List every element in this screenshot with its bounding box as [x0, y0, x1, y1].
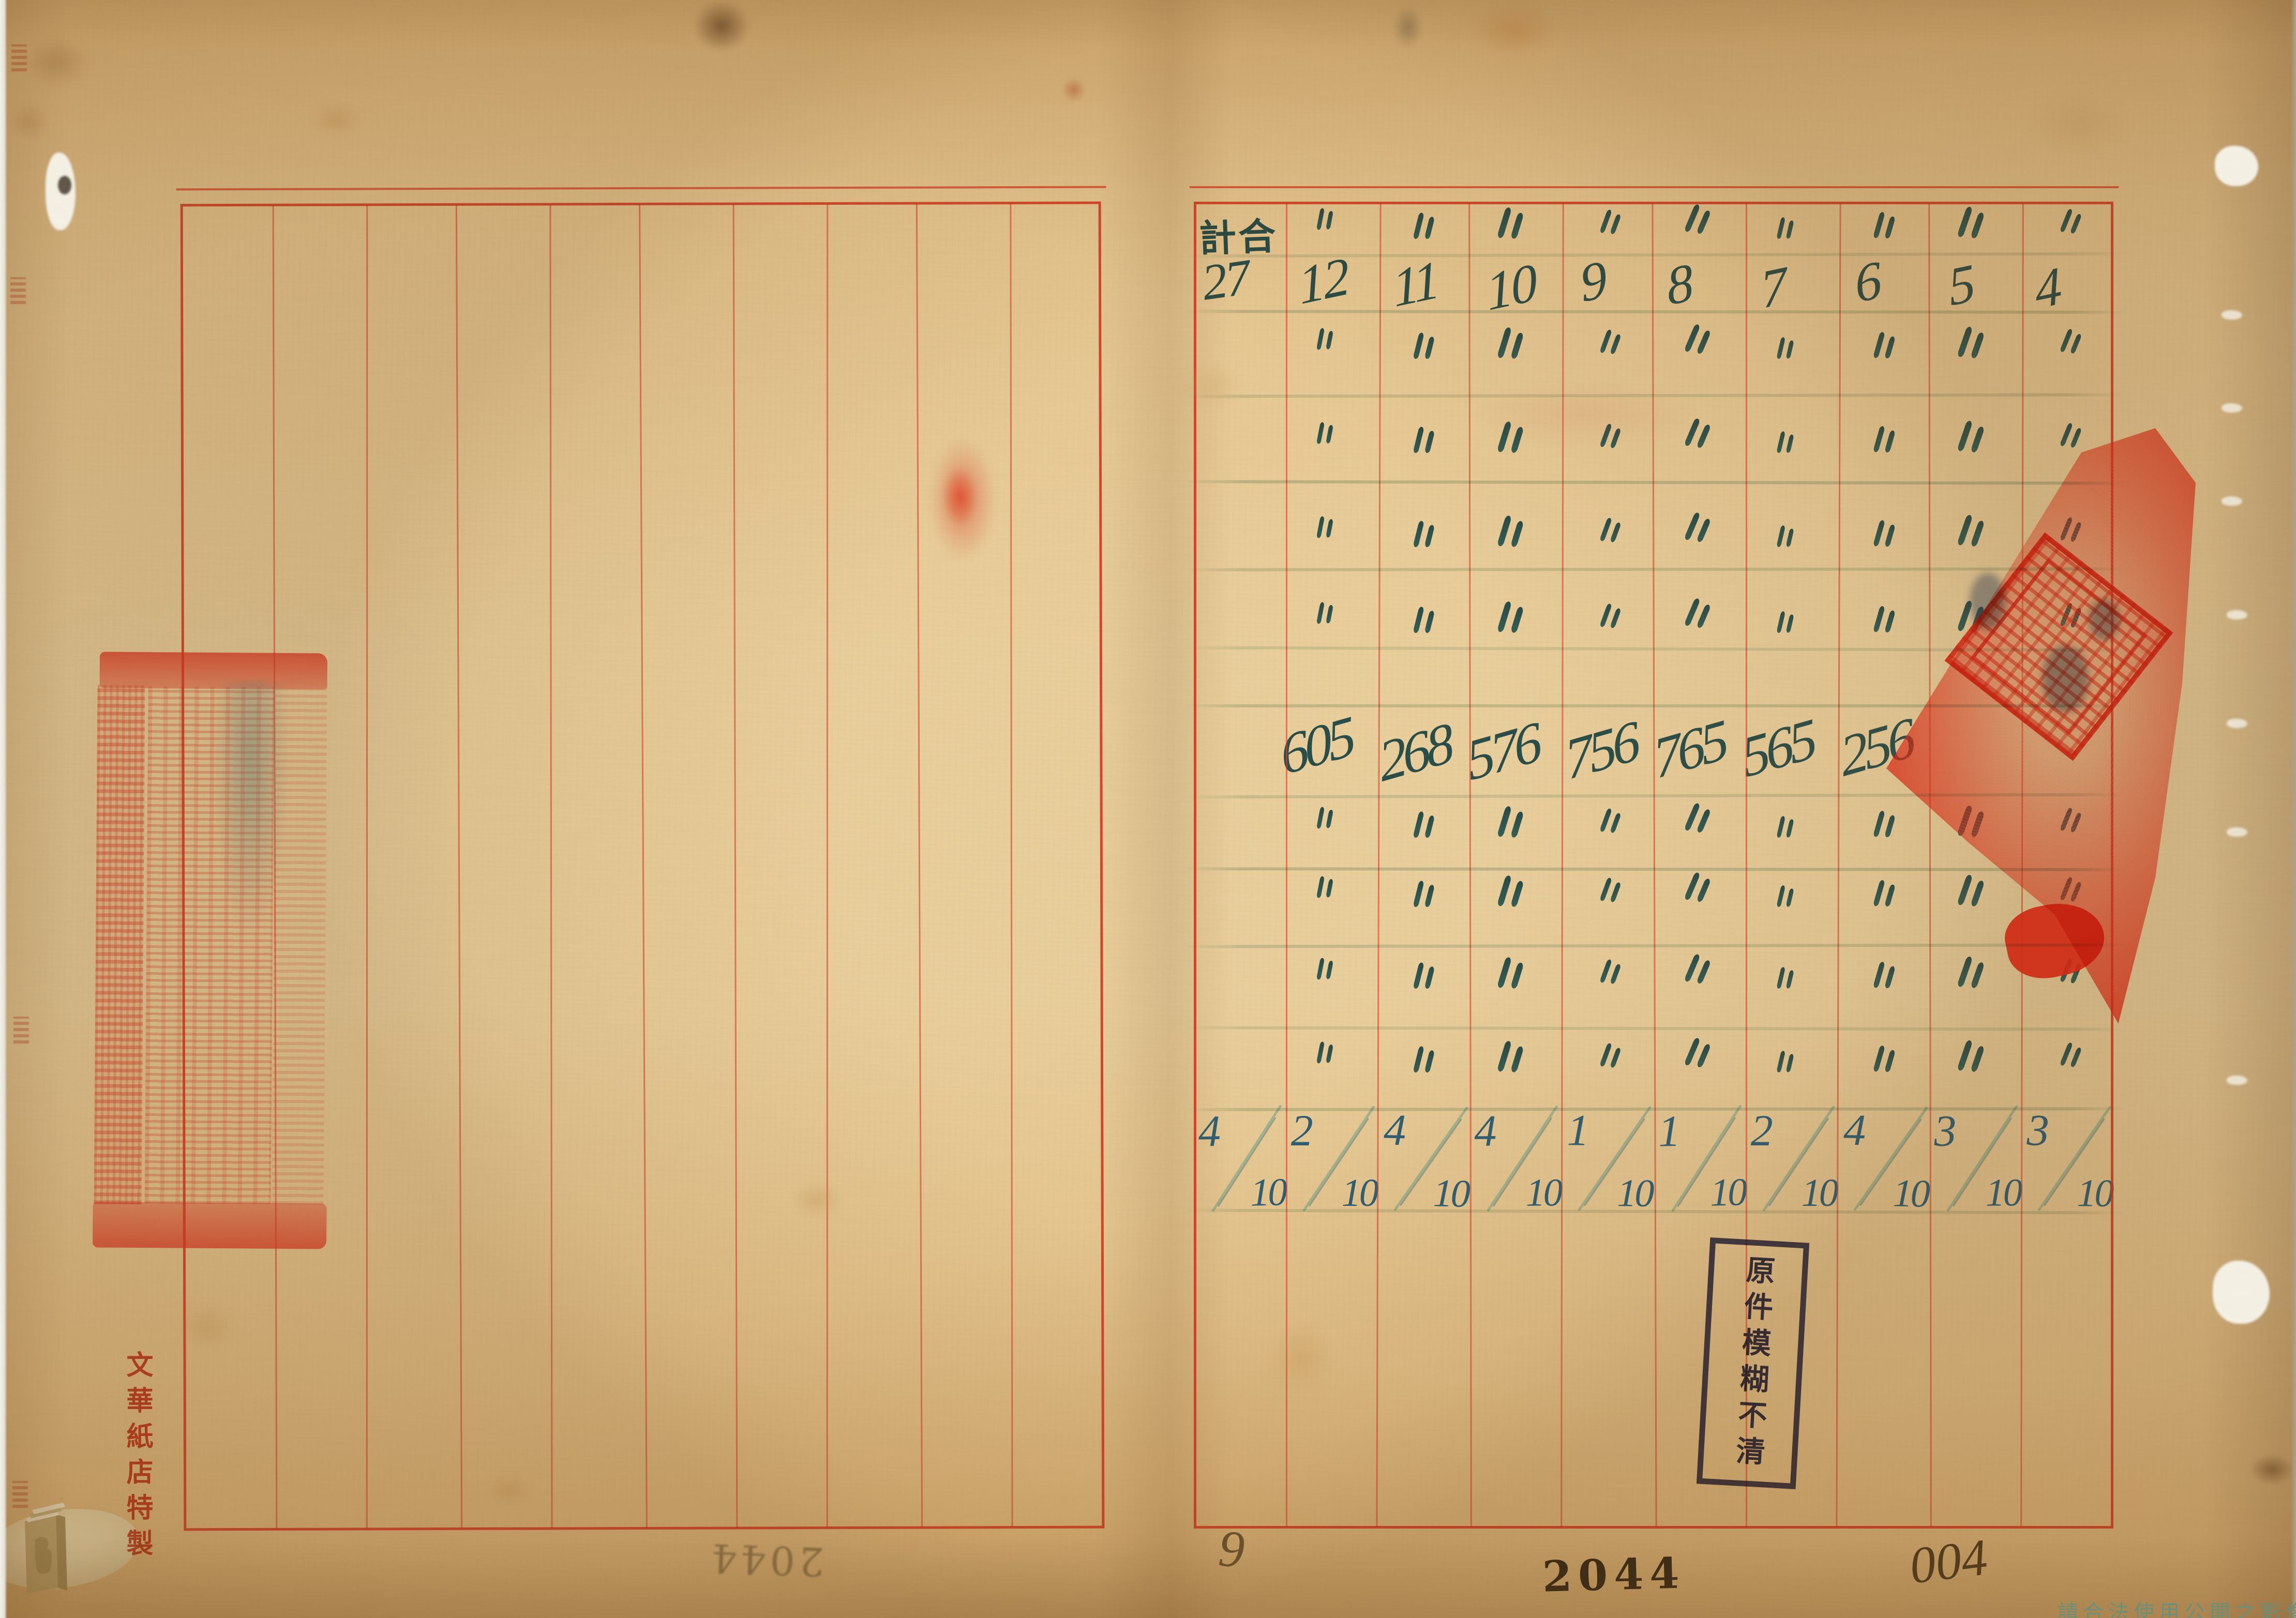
red-transfer-seal — [93, 652, 336, 1249]
edge-speck — [2227, 719, 2247, 728]
seal-bottom-band — [93, 1202, 327, 1249]
grid-vertical-line — [1286, 204, 1287, 1526]
margin-red-mark — [11, 44, 27, 71]
grid-vertical-line — [827, 204, 828, 1527]
blue-smudge-icon — [2089, 599, 2120, 640]
legal-watermark-text: 請合法使用公開之影像 — [2058, 1596, 2296, 1618]
blue-smudge-icon — [2042, 645, 2089, 713]
blur-notice-text: 原件模糊不清 — [1726, 1254, 1780, 1473]
edge-scuff — [2215, 146, 2258, 186]
edge-speck — [2227, 1076, 2247, 1085]
header-total-label: 計合 — [1198, 205, 1279, 262]
edge-speck — [2227, 827, 2247, 837]
pencil-page-number: 004 — [1907, 1527, 1991, 1595]
blur-notice-stamp: 原件模糊不清 — [1697, 1237, 1809, 1489]
grid-vertical-line — [366, 205, 368, 1528]
hand-ruled-line — [1185, 704, 2126, 707]
paper-maker-text: 文華紙店特製 — [118, 1351, 157, 1565]
edge-scuff — [2213, 1261, 2270, 1324]
edge-speck — [2227, 610, 2247, 619]
scan-edge-left — [0, 0, 7, 1618]
blue-smudge-icon — [1970, 573, 2006, 630]
margin-red-mark — [13, 1017, 29, 1044]
scanned-ledger-page: 計合 27 文華紙店特製 原件模糊不清 2044 004 9 2044 請合法使… — [0, 0, 2296, 1618]
scan-edge-right — [2291, 0, 2296, 1618]
pencil-digit: 9 — [1217, 1518, 1247, 1579]
margin-red-mark — [10, 277, 26, 304]
edge-speck — [2222, 310, 2242, 320]
edge-speck — [2222, 496, 2242, 506]
right-sheet-outer-topline — [1190, 186, 2119, 188]
printed-page-number: 2044 — [1542, 1548, 1686, 1601]
mirrored-page-number: 2044 — [707, 1535, 825, 1585]
seal-left-column-pattern — [94, 685, 145, 1204]
edge-speck — [2222, 403, 2242, 413]
book-icon — [16, 1500, 103, 1595]
teal-ink-smudge — [211, 681, 290, 940]
